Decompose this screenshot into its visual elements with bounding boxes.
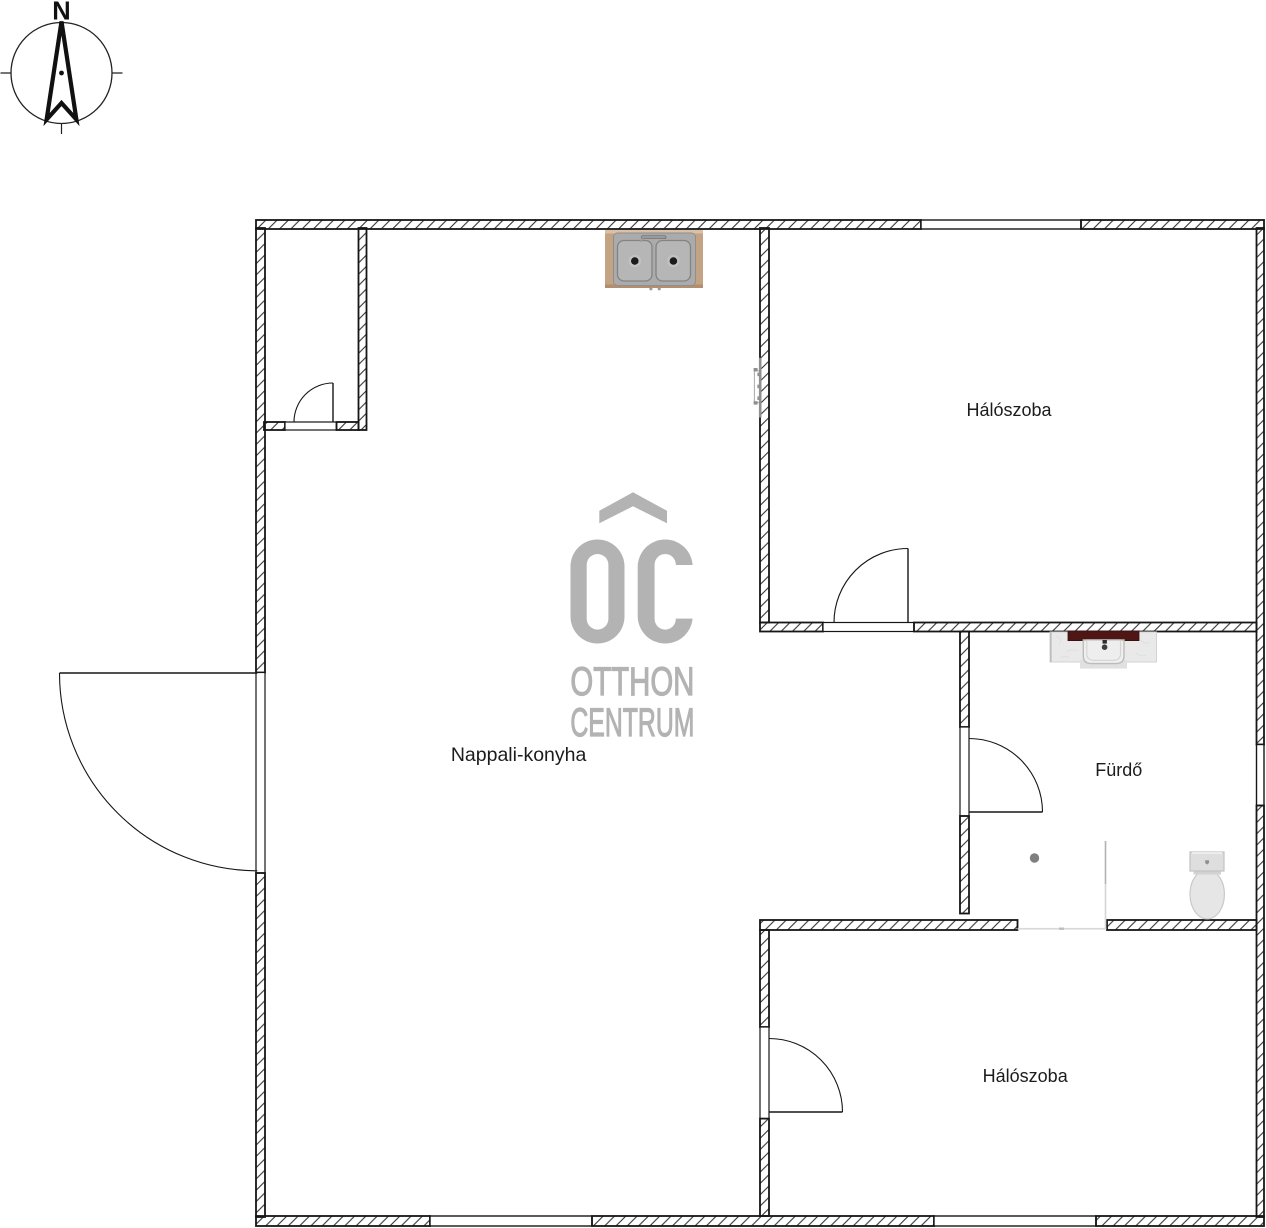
svg-text:Hálószoba: Hálószoba	[983, 1066, 1069, 1086]
svg-text:Hálószoba: Hálószoba	[966, 400, 1052, 420]
svg-text:Fürdő: Fürdő	[1095, 760, 1142, 780]
svg-text:N: N	[52, 0, 70, 26]
svg-text:CENTRUM: CENTRUM	[570, 701, 694, 745]
svg-text:Nappali-konyha: Nappali-konyha	[451, 744, 587, 766]
svg-text:OTTHON: OTTHON	[570, 660, 694, 704]
